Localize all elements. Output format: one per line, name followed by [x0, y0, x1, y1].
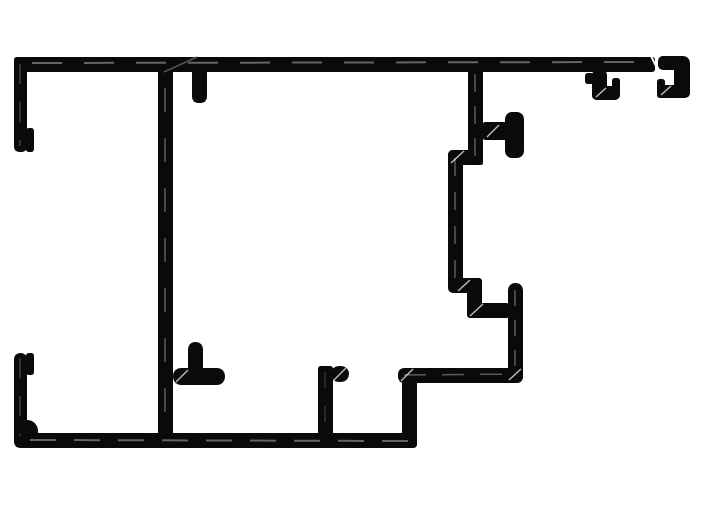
top-left-inner-foot	[26, 128, 34, 152]
end-hook-tip	[657, 79, 665, 98]
arm-centerline	[404, 374, 516, 375]
lower-step-shelf-2	[467, 303, 510, 318]
bottom-bar-centerline	[30, 440, 410, 441]
screw-boss-cap	[505, 112, 524, 158]
drawing-canvas	[0, 0, 702, 525]
top-inner-stub	[192, 64, 207, 103]
bottom-left-inner-lip	[26, 353, 34, 375]
top-flange-bar	[14, 57, 655, 72]
bottom-left-corner-fillet	[14, 420, 38, 448]
profile-svg	[0, 0, 702, 525]
gasket-hook-tip	[612, 78, 620, 92]
gasket-hook-nub	[585, 73, 594, 84]
screw-boss-stem	[483, 122, 508, 140]
bottom-tee-finger	[188, 342, 203, 385]
drawing-page	[0, 0, 702, 525]
